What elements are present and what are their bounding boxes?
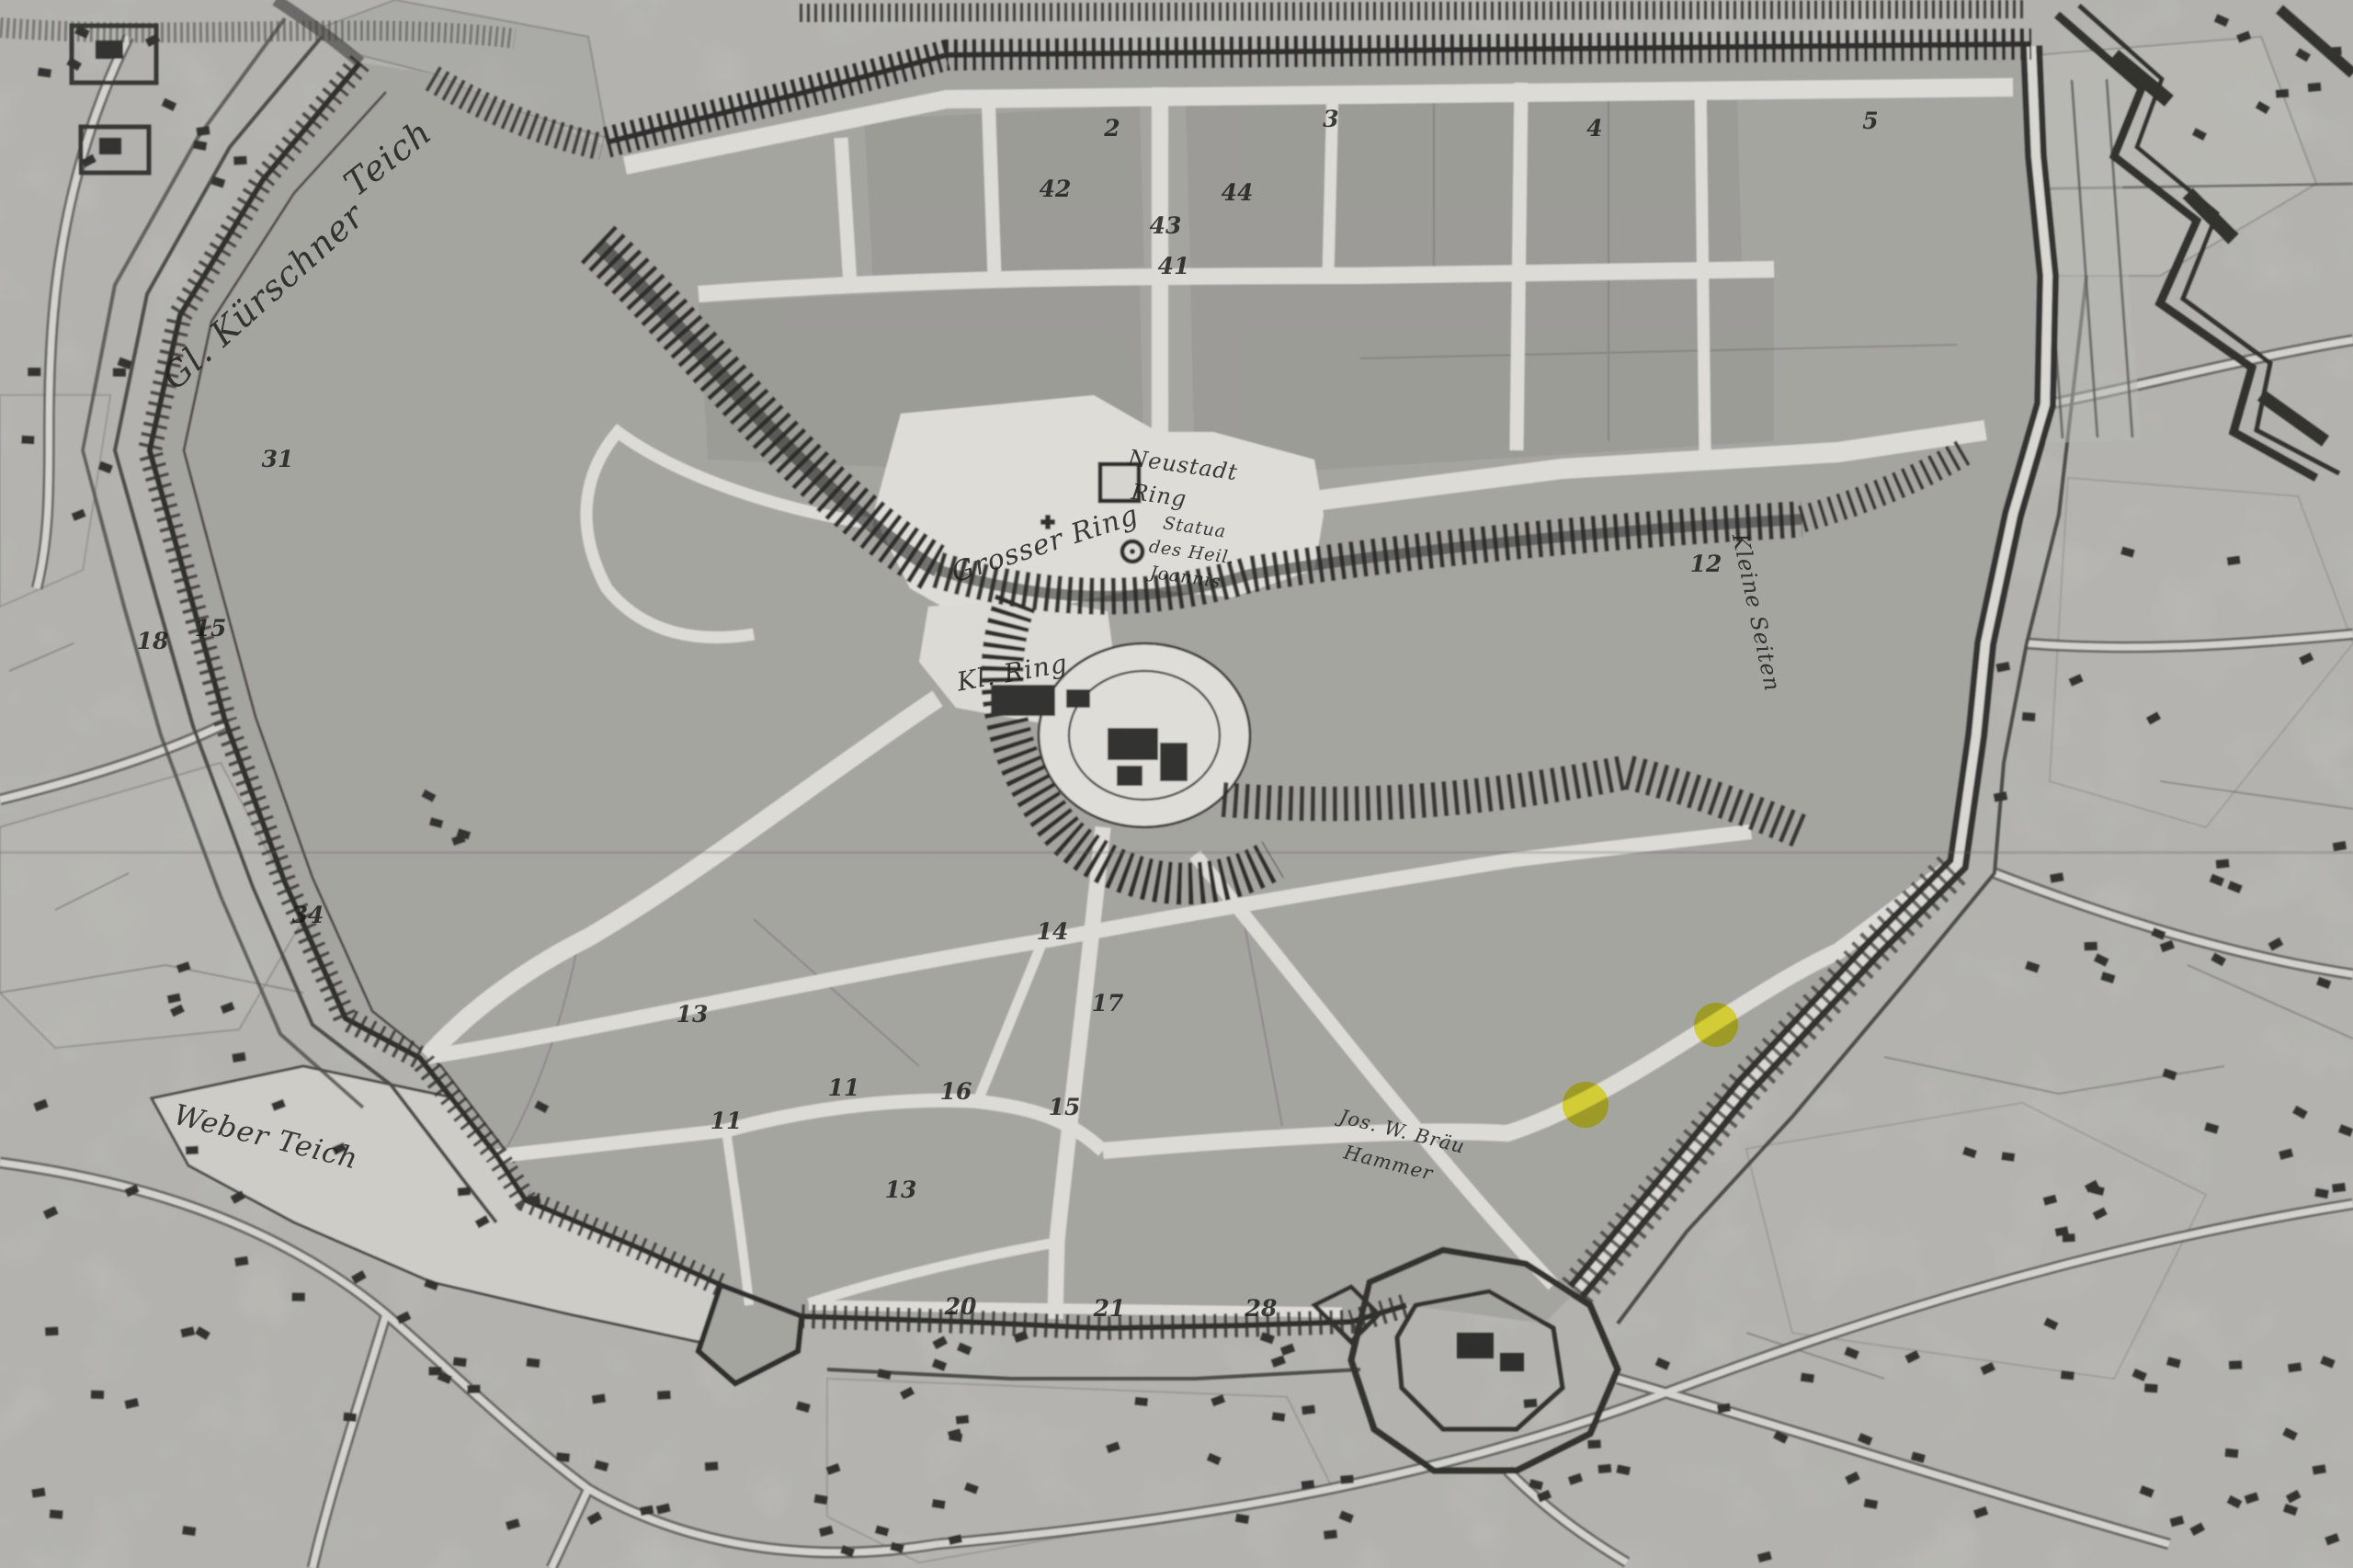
parcel-number: 44 [1222,179,1254,206]
parcel-number: 17 [1092,990,1124,1017]
parcel-number: 2 [1103,115,1120,142]
historic-fortification-city-map: Gl. KürschnerTeichWeber TeichGrosser Rin… [0,0,2353,1568]
parcel-number: 21 [1093,1295,1126,1322]
highlight-dot-1 [1694,1003,1738,1047]
parcel-number: 15 [195,615,227,642]
parcel-number: 15 [1049,1094,1081,1120]
parcel-number: 11 [828,1074,860,1101]
parcel-number: 14 [1037,918,1069,945]
parcel-number: 5 [1862,108,1878,134]
parcel-number: 4 [1586,115,1602,142]
parcel-number: 31 [262,446,294,472]
parcel-number: 12 [1690,551,1722,577]
parcel-number: 43 [1150,212,1182,239]
parcel-number: 11 [710,1108,743,1134]
parcel-number: 3 [1323,106,1338,132]
scanned-historic-map-page: Gl. KürschnerTeichWeber TeichGrosser Rin… [0,0,2353,1568]
parcel-number: 18 [137,628,169,654]
parcel-number: 41 [1158,253,1190,279]
parcel-number: 13 [885,1176,917,1203]
parcel-number: 16 [940,1078,972,1105]
parcel-number: 28 [1245,1295,1278,1322]
highlight-dot-2 [1563,1082,1608,1128]
parcel-number: 34 [292,902,324,928]
parcel-number: 13 [676,1001,709,1028]
parcel-number: 42 [1040,176,1072,202]
parcel-number: 20 [944,1293,977,1320]
